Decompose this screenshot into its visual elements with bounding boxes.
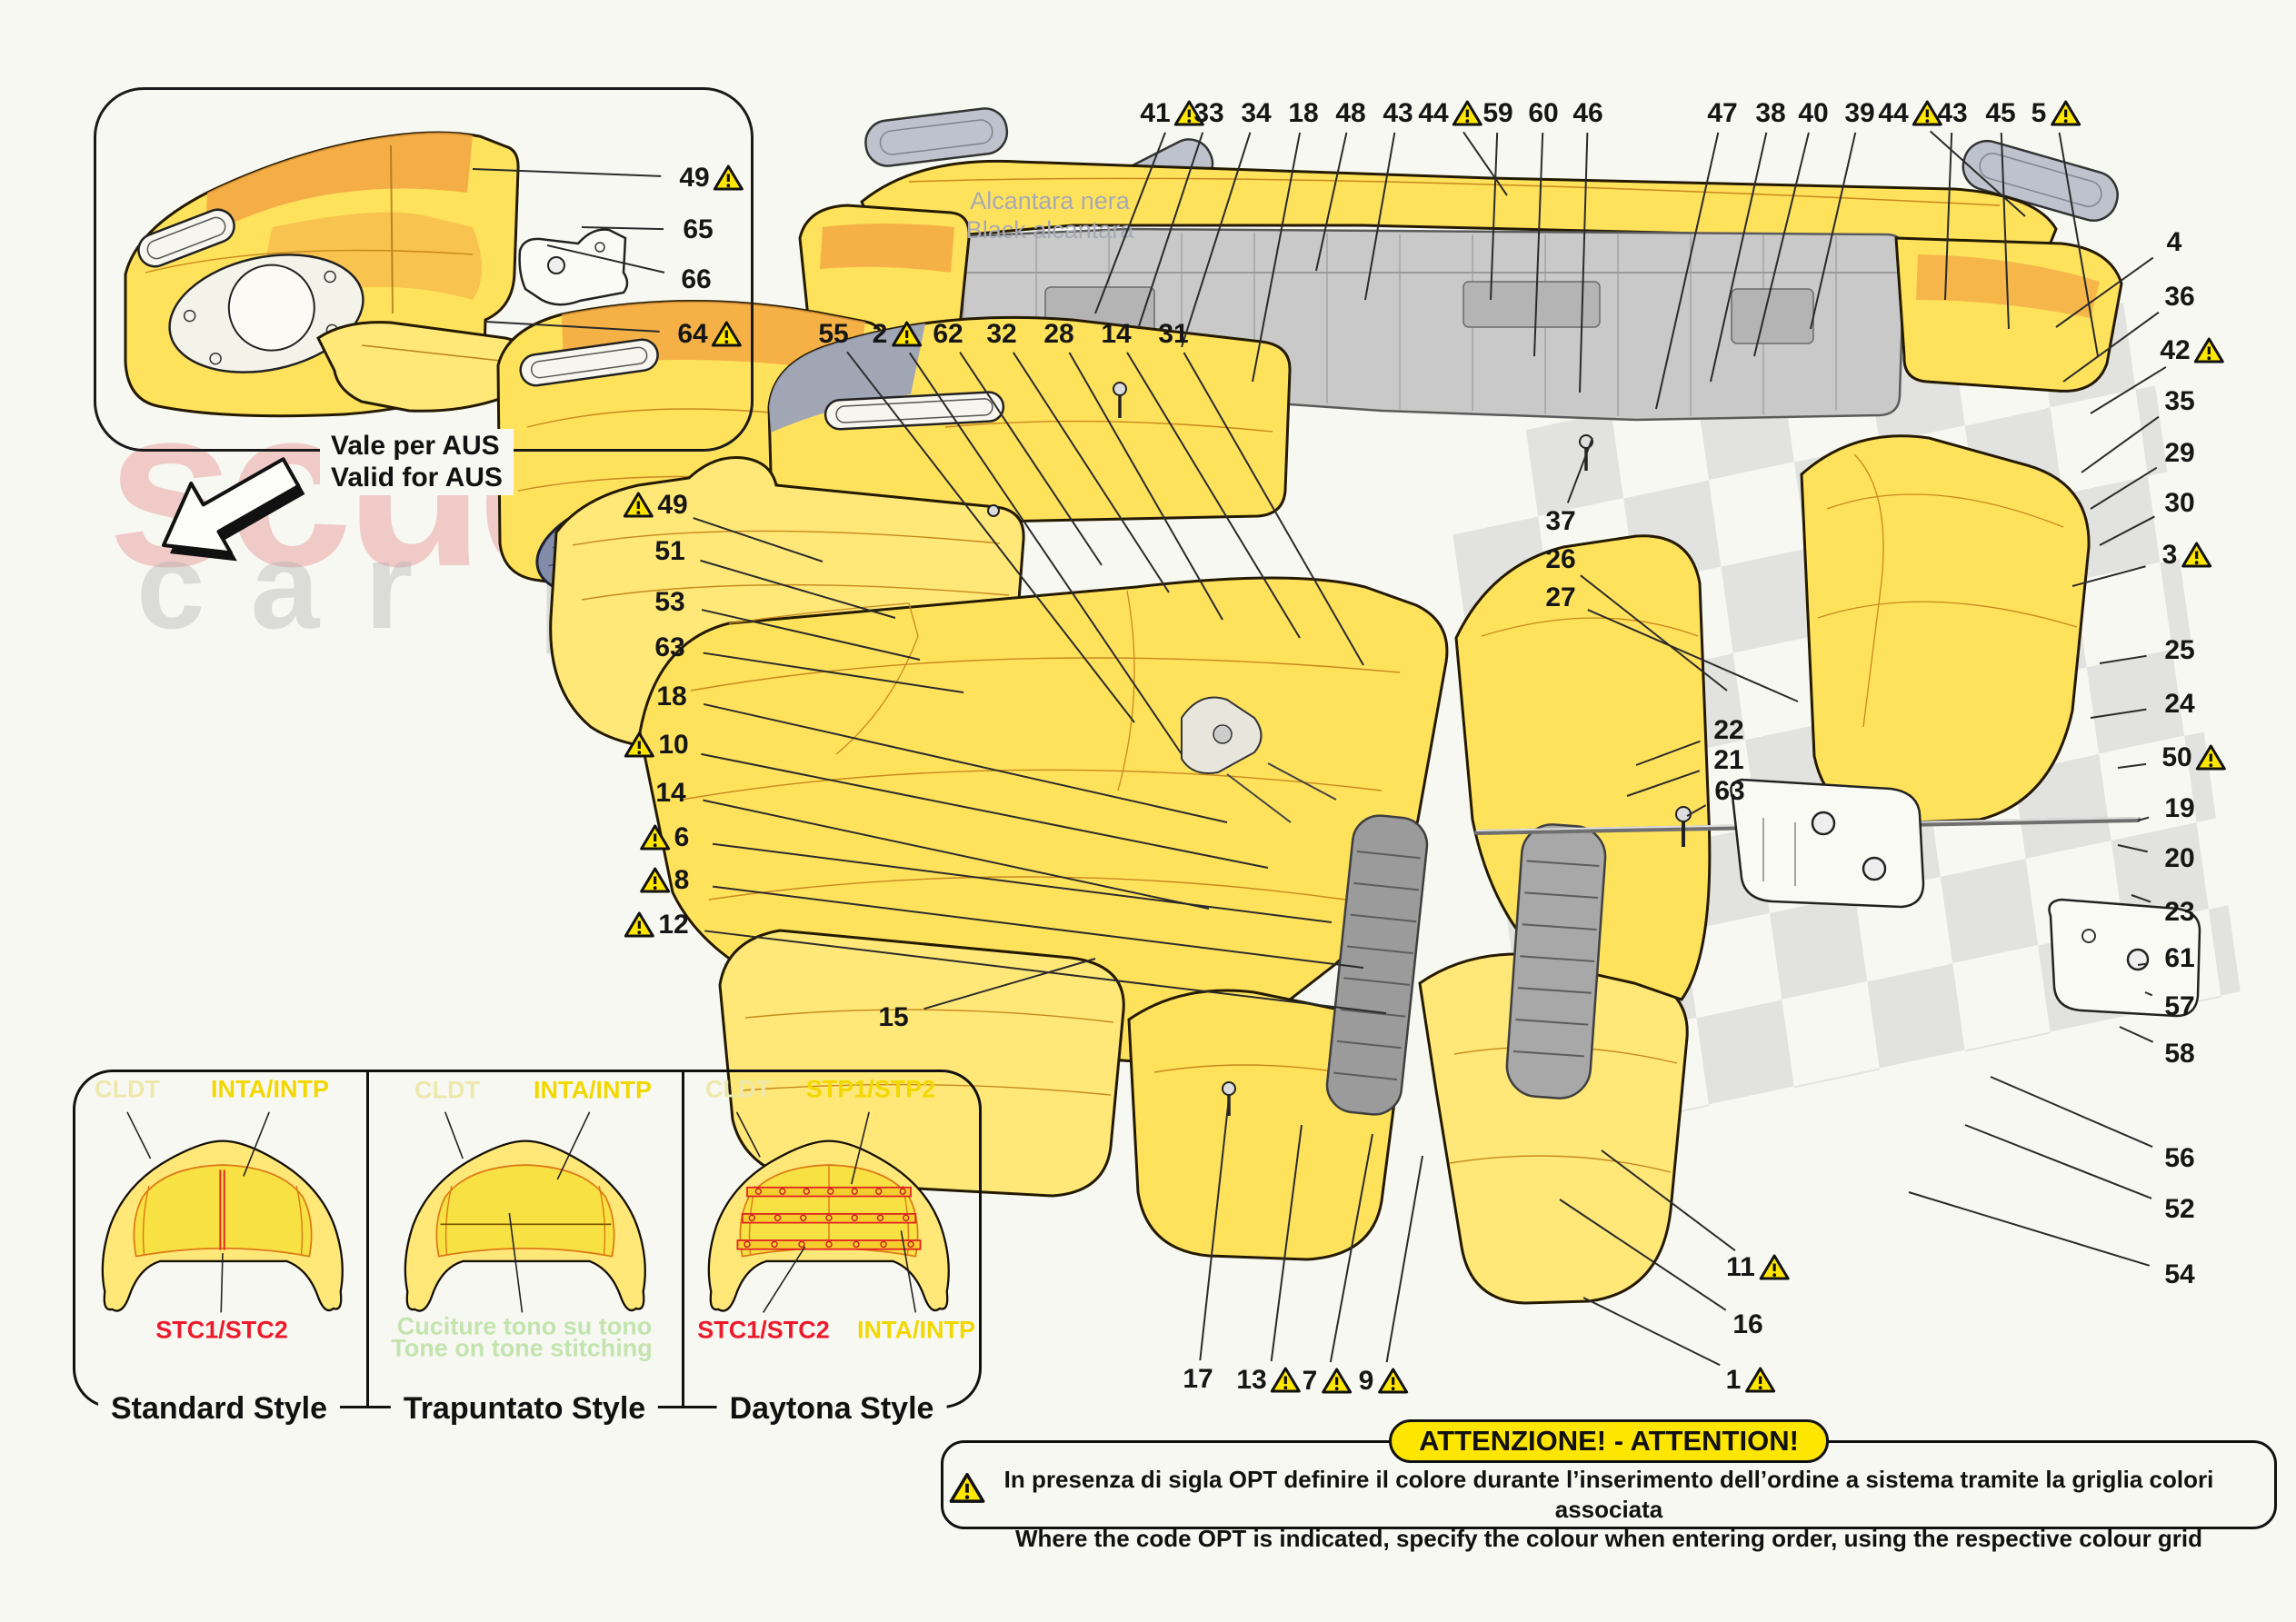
attention-line-english: Where the code OPT is indicated, specify… bbox=[989, 1524, 2229, 1554]
inset-caption: Vale per AUS Valid for AUS bbox=[320, 429, 514, 495]
callout-63: 63 bbox=[654, 632, 684, 663]
callout-number: 43 bbox=[1383, 98, 1413, 129]
callout-number: 2 bbox=[873, 319, 888, 350]
callout-21: 21 bbox=[1713, 745, 1743, 776]
callout-number: 57 bbox=[2164, 991, 2194, 1022]
callout-number: 18 bbox=[656, 682, 686, 712]
callout-49: 49 bbox=[623, 490, 687, 521]
callout-18: 18 bbox=[1288, 98, 1318, 129]
callout-55: 55 bbox=[818, 319, 848, 350]
callout-26: 26 bbox=[1545, 544, 1575, 575]
callout-number: 45 bbox=[1985, 98, 2015, 129]
callout-number: 15 bbox=[878, 1002, 908, 1033]
callout-8: 8 bbox=[640, 865, 690, 896]
callout-number: 64 bbox=[677, 319, 707, 350]
callout-number: 31 bbox=[1158, 319, 1188, 350]
style-divider-2 bbox=[682, 1070, 684, 1408]
style-label: STC1/STC2 bbox=[155, 1317, 288, 1345]
inset-caption-english: Valid for AUS bbox=[331, 463, 503, 494]
callout-number: 1 bbox=[1726, 1365, 1742, 1396]
callout-13: 13 bbox=[1236, 1365, 1301, 1396]
callout-number: 61 bbox=[2164, 943, 2194, 974]
callout-56: 56 bbox=[2164, 1143, 2194, 1174]
callout-14: 14 bbox=[655, 778, 685, 809]
callout-number: 18 bbox=[1288, 98, 1318, 129]
callout-40: 40 bbox=[1798, 98, 1828, 129]
callout-63: 63 bbox=[1714, 776, 1744, 807]
callout-number: 30 bbox=[2164, 488, 2194, 519]
style-label: STC1/STC2 bbox=[697, 1317, 830, 1345]
callout-58: 58 bbox=[2164, 1039, 2194, 1070]
callout-number: 6 bbox=[674, 822, 690, 853]
warning-icon bbox=[949, 1472, 985, 1505]
callout-62: 62 bbox=[933, 319, 963, 350]
callout-number: 37 bbox=[1545, 506, 1575, 537]
callout-53: 53 bbox=[654, 587, 684, 618]
callout-number: 63 bbox=[1714, 776, 1744, 807]
callout-20: 20 bbox=[2164, 843, 2194, 874]
callout-65: 65 bbox=[683, 214, 713, 245]
callout-number: 12 bbox=[658, 910, 688, 940]
callout-50: 50 bbox=[2161, 742, 2226, 773]
callout-number: 27 bbox=[1545, 582, 1575, 613]
style-label: INTA/INTP bbox=[534, 1077, 652, 1105]
callout-66: 66 bbox=[681, 264, 711, 295]
callout-number: 53 bbox=[654, 587, 684, 618]
callout-44: 44 bbox=[1878, 98, 1942, 129]
callout-number: 41 bbox=[1140, 98, 1170, 129]
callout-2: 2 bbox=[873, 319, 923, 350]
callout-number: 14 bbox=[655, 778, 685, 809]
callout-64: 64 bbox=[677, 319, 742, 350]
callout-5: 5 bbox=[2031, 98, 2081, 129]
callout-number: 3 bbox=[2162, 540, 2178, 571]
callout-9: 9 bbox=[1359, 1366, 1409, 1397]
callout-59: 59 bbox=[1482, 98, 1512, 129]
callout-35: 35 bbox=[2164, 386, 2194, 417]
style-divider-1 bbox=[366, 1070, 369, 1408]
callout-number: 29 bbox=[2164, 438, 2194, 469]
style-drawing-standard bbox=[86, 1100, 359, 1327]
callout-30: 30 bbox=[2164, 488, 2194, 519]
attention-line-italian: In presenza di sigla OPT definire il col… bbox=[989, 1465, 2229, 1524]
callout-number: 5 bbox=[2031, 98, 2047, 129]
callout-number: 14 bbox=[1101, 319, 1131, 350]
callout-54: 54 bbox=[2164, 1259, 2194, 1290]
callout-61: 61 bbox=[2164, 943, 2194, 974]
callout-46: 46 bbox=[1572, 98, 1602, 129]
callout-number: 39 bbox=[1844, 98, 1874, 129]
parts-diagram-page: { "page": {"bg": "#F8F8F3"}, "colors": {… bbox=[0, 0, 2296, 1622]
callout-14: 14 bbox=[1101, 319, 1131, 350]
callout-number: 48 bbox=[1335, 98, 1365, 129]
style-drawing-trapuntato bbox=[389, 1100, 662, 1327]
callout-47: 47 bbox=[1707, 98, 1737, 129]
callout-52: 52 bbox=[2164, 1194, 2194, 1225]
callout-number: 60 bbox=[1528, 98, 1558, 129]
callout-6: 6 bbox=[640, 822, 690, 853]
callout-29: 29 bbox=[2164, 438, 2194, 469]
callout-17: 17 bbox=[1183, 1364, 1213, 1395]
callout-number: 8 bbox=[674, 865, 690, 896]
callout-number: 34 bbox=[1241, 98, 1271, 129]
callout-number: 7 bbox=[1303, 1366, 1318, 1397]
callout-number: 4 bbox=[2167, 227, 2182, 258]
callout-39: 39 bbox=[1844, 98, 1874, 129]
callout-number: 42 bbox=[2160, 335, 2190, 366]
callout-number: 32 bbox=[986, 319, 1016, 350]
style-label: CLDT bbox=[414, 1077, 480, 1105]
callout-number: 59 bbox=[1482, 98, 1512, 129]
style-caption-standard: Standard Style bbox=[98, 1391, 340, 1427]
callout-number: 33 bbox=[1193, 98, 1223, 129]
callout-number: 54 bbox=[2164, 1259, 2194, 1290]
callout-33: 33 bbox=[1193, 98, 1223, 129]
callout-38: 38 bbox=[1755, 98, 1785, 129]
callout-number: 24 bbox=[2164, 689, 2194, 720]
callout-number: 22 bbox=[1713, 715, 1743, 746]
style-drawing-daytona bbox=[693, 1100, 965, 1327]
callout-number: 63 bbox=[654, 632, 684, 663]
callout-number: 62 bbox=[933, 319, 963, 350]
callout-number: 47 bbox=[1707, 98, 1737, 129]
callout-number: 50 bbox=[2161, 742, 2191, 773]
style-label: INTA/INTP bbox=[857, 1317, 975, 1345]
callout-number: 43 bbox=[1937, 98, 1967, 129]
alcantara-note-english: Black alcantara bbox=[966, 216, 1134, 245]
callout-number: 44 bbox=[1418, 98, 1448, 129]
callout-number: 38 bbox=[1755, 98, 1785, 129]
callout-number: 9 bbox=[1359, 1366, 1374, 1397]
callout-number: 55 bbox=[818, 319, 848, 350]
callout-60: 60 bbox=[1528, 98, 1558, 129]
callout-49: 49 bbox=[679, 163, 744, 194]
style-label: STP1/STP2 bbox=[806, 1076, 936, 1104]
callout-number: 56 bbox=[2164, 1143, 2194, 1174]
callout-number: 35 bbox=[2164, 386, 2194, 417]
callout-43: 43 bbox=[1383, 98, 1413, 129]
callout-42: 42 bbox=[2160, 335, 2224, 366]
direction-arrow bbox=[164, 459, 304, 561]
callout-31: 31 bbox=[1158, 319, 1188, 350]
style-caption-trapuntato: Trapuntato Style bbox=[391, 1391, 658, 1427]
attention-text: In presenza di sigla OPT definire il col… bbox=[943, 1465, 2274, 1554]
callout-number: 66 bbox=[681, 264, 711, 295]
inset-frame bbox=[94, 87, 754, 452]
callout-22: 22 bbox=[1713, 715, 1743, 746]
callout-7: 7 bbox=[1303, 1366, 1353, 1397]
attention-title: ATTENZIONE! - ATTENTION! bbox=[1389, 1419, 1829, 1463]
callout-25: 25 bbox=[2164, 635, 2194, 666]
callout-number: 36 bbox=[2164, 282, 2194, 313]
callout-number: 19 bbox=[2164, 793, 2194, 824]
callout-number: 17 bbox=[1183, 1364, 1213, 1395]
callout-number: 28 bbox=[1043, 319, 1073, 350]
callout-number: 11 bbox=[1726, 1252, 1755, 1283]
style-label: Tone on tone stitching bbox=[391, 1335, 652, 1363]
callout-number: 40 bbox=[1798, 98, 1828, 129]
callout-16: 16 bbox=[1732, 1309, 1762, 1340]
callout-number: 46 bbox=[1572, 98, 1602, 129]
callout-37: 37 bbox=[1545, 506, 1575, 537]
style-caption-daytona: Daytona Style bbox=[717, 1391, 947, 1427]
callout-number: 51 bbox=[654, 536, 684, 567]
style-label: CLDT bbox=[705, 1076, 771, 1104]
callout-3: 3 bbox=[2162, 540, 2212, 571]
callout-number: 26 bbox=[1545, 544, 1575, 575]
callout-number: 65 bbox=[683, 214, 713, 245]
callout-number: 52 bbox=[2164, 1194, 2194, 1225]
callout-number: 25 bbox=[2164, 635, 2194, 666]
callout-27: 27 bbox=[1545, 582, 1575, 613]
callout-number: 21 bbox=[1713, 745, 1743, 776]
attention-box: ATTENZIONE! - ATTENTION! In presenza di … bbox=[941, 1440, 2277, 1529]
callout-24: 24 bbox=[2164, 689, 2194, 720]
callout-12: 12 bbox=[624, 910, 688, 940]
callout-48: 48 bbox=[1335, 98, 1365, 129]
style-label: INTA/INTP bbox=[211, 1076, 329, 1104]
callout-number: 20 bbox=[2164, 843, 2194, 874]
callout-43: 43 bbox=[1937, 98, 1967, 129]
callout-number: 13 bbox=[1236, 1365, 1266, 1396]
callout-4: 4 bbox=[2167, 227, 2182, 258]
callout-number: 10 bbox=[658, 730, 688, 761]
inset-caption-italian: Vale per AUS bbox=[331, 431, 503, 463]
callout-number: 16 bbox=[1732, 1309, 1762, 1340]
callout-51: 51 bbox=[654, 536, 684, 567]
callout-34: 34 bbox=[1241, 98, 1271, 129]
callout-19: 19 bbox=[2164, 793, 2194, 824]
callout-number: 58 bbox=[2164, 1039, 2194, 1070]
callout-10: 10 bbox=[624, 730, 688, 761]
callout-number: 23 bbox=[2164, 897, 2194, 928]
callout-23: 23 bbox=[2164, 897, 2194, 928]
callout-11: 11 bbox=[1726, 1252, 1790, 1283]
callout-36: 36 bbox=[2164, 282, 2194, 313]
callout-32: 32 bbox=[986, 319, 1016, 350]
callout-15: 15 bbox=[878, 1002, 908, 1033]
style-label: CLDT bbox=[95, 1076, 160, 1104]
callout-18: 18 bbox=[656, 682, 686, 712]
callout-1: 1 bbox=[1726, 1365, 1776, 1396]
callout-57: 57 bbox=[2164, 991, 2194, 1022]
callout-number: 49 bbox=[657, 490, 687, 521]
callout-45: 45 bbox=[1985, 98, 2015, 129]
callout-28: 28 bbox=[1043, 319, 1073, 350]
alcantara-note: Alcantara nera Black alcantara bbox=[966, 187, 1134, 245]
alcantara-note-italian: Alcantara nera bbox=[966, 187, 1134, 216]
callout-number: 44 bbox=[1878, 98, 1908, 129]
callout-44: 44 bbox=[1418, 98, 1482, 129]
callout-number: 49 bbox=[679, 163, 709, 194]
